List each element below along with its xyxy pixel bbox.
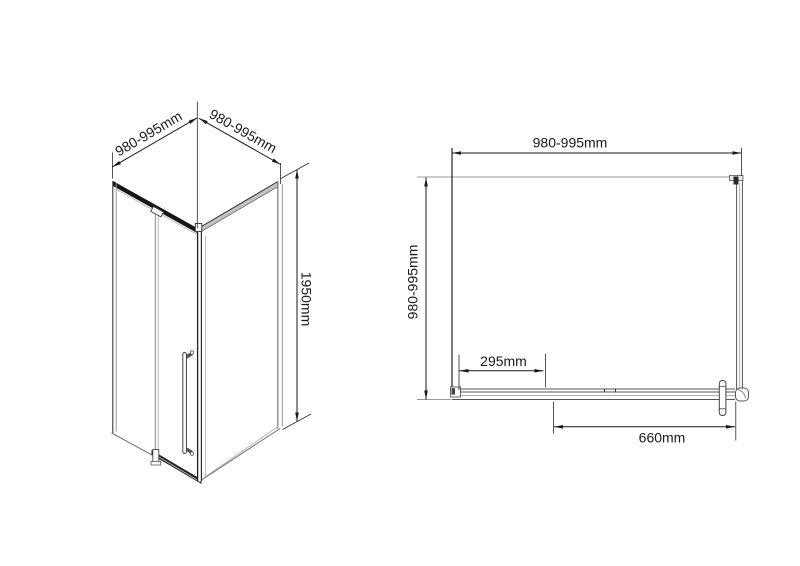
iso-door-bottom-guide-foot xyxy=(151,462,161,466)
plan-track-left-clamp xyxy=(452,388,456,395)
iso-handle-bottom-mount xyxy=(190,452,193,455)
background xyxy=(0,0,800,566)
plan-top-right-clamp xyxy=(734,177,739,185)
plan-door-handle xyxy=(719,381,726,416)
plan-dim-door-width-label: 660mm xyxy=(639,429,686,445)
plan-dim-panel-offset-label: 295mm xyxy=(480,353,527,369)
technical-drawing-canvas: 980-995mm 980-995mm 1950mm xyxy=(0,0,800,566)
plan-dim-depth-label: 980-995mm xyxy=(404,245,420,320)
plan-dim-width-label: 980-995mm xyxy=(533,134,608,150)
shower-enclosure-drawing: 980-995mm 980-995mm 1950mm xyxy=(0,0,800,566)
iso-dim-height-label: 1950mm xyxy=(299,272,315,326)
iso-handle-bar xyxy=(183,353,187,454)
iso-handle-top-mount xyxy=(190,351,193,354)
iso-corner-cap xyxy=(195,224,202,232)
